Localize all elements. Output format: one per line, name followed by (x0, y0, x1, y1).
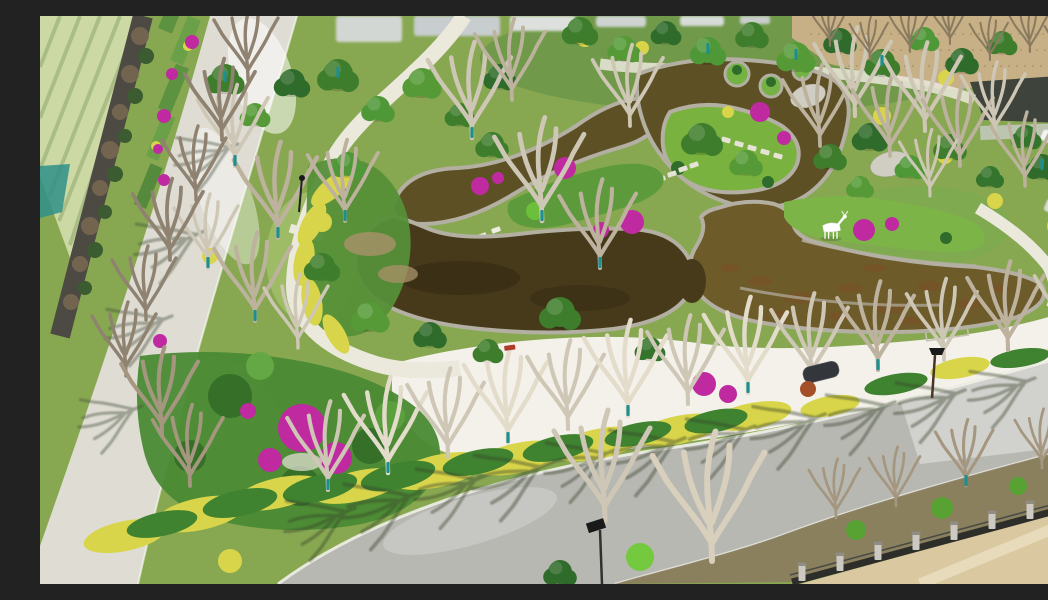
mulch-patch (344, 232, 396, 256)
mulch-patch (378, 265, 418, 283)
park-scene (40, 16, 1048, 584)
aerial-park-photo: Aerial drone photograph of a newly lands… (40, 16, 1048, 584)
pond-channel (678, 259, 706, 303)
bed-bright-shrub (246, 352, 274, 380)
lamp-head (299, 175, 305, 181)
red-shrub (800, 381, 816, 397)
deer-head (843, 215, 847, 219)
deer-shadow (820, 236, 842, 241)
deer-body (823, 223, 841, 232)
